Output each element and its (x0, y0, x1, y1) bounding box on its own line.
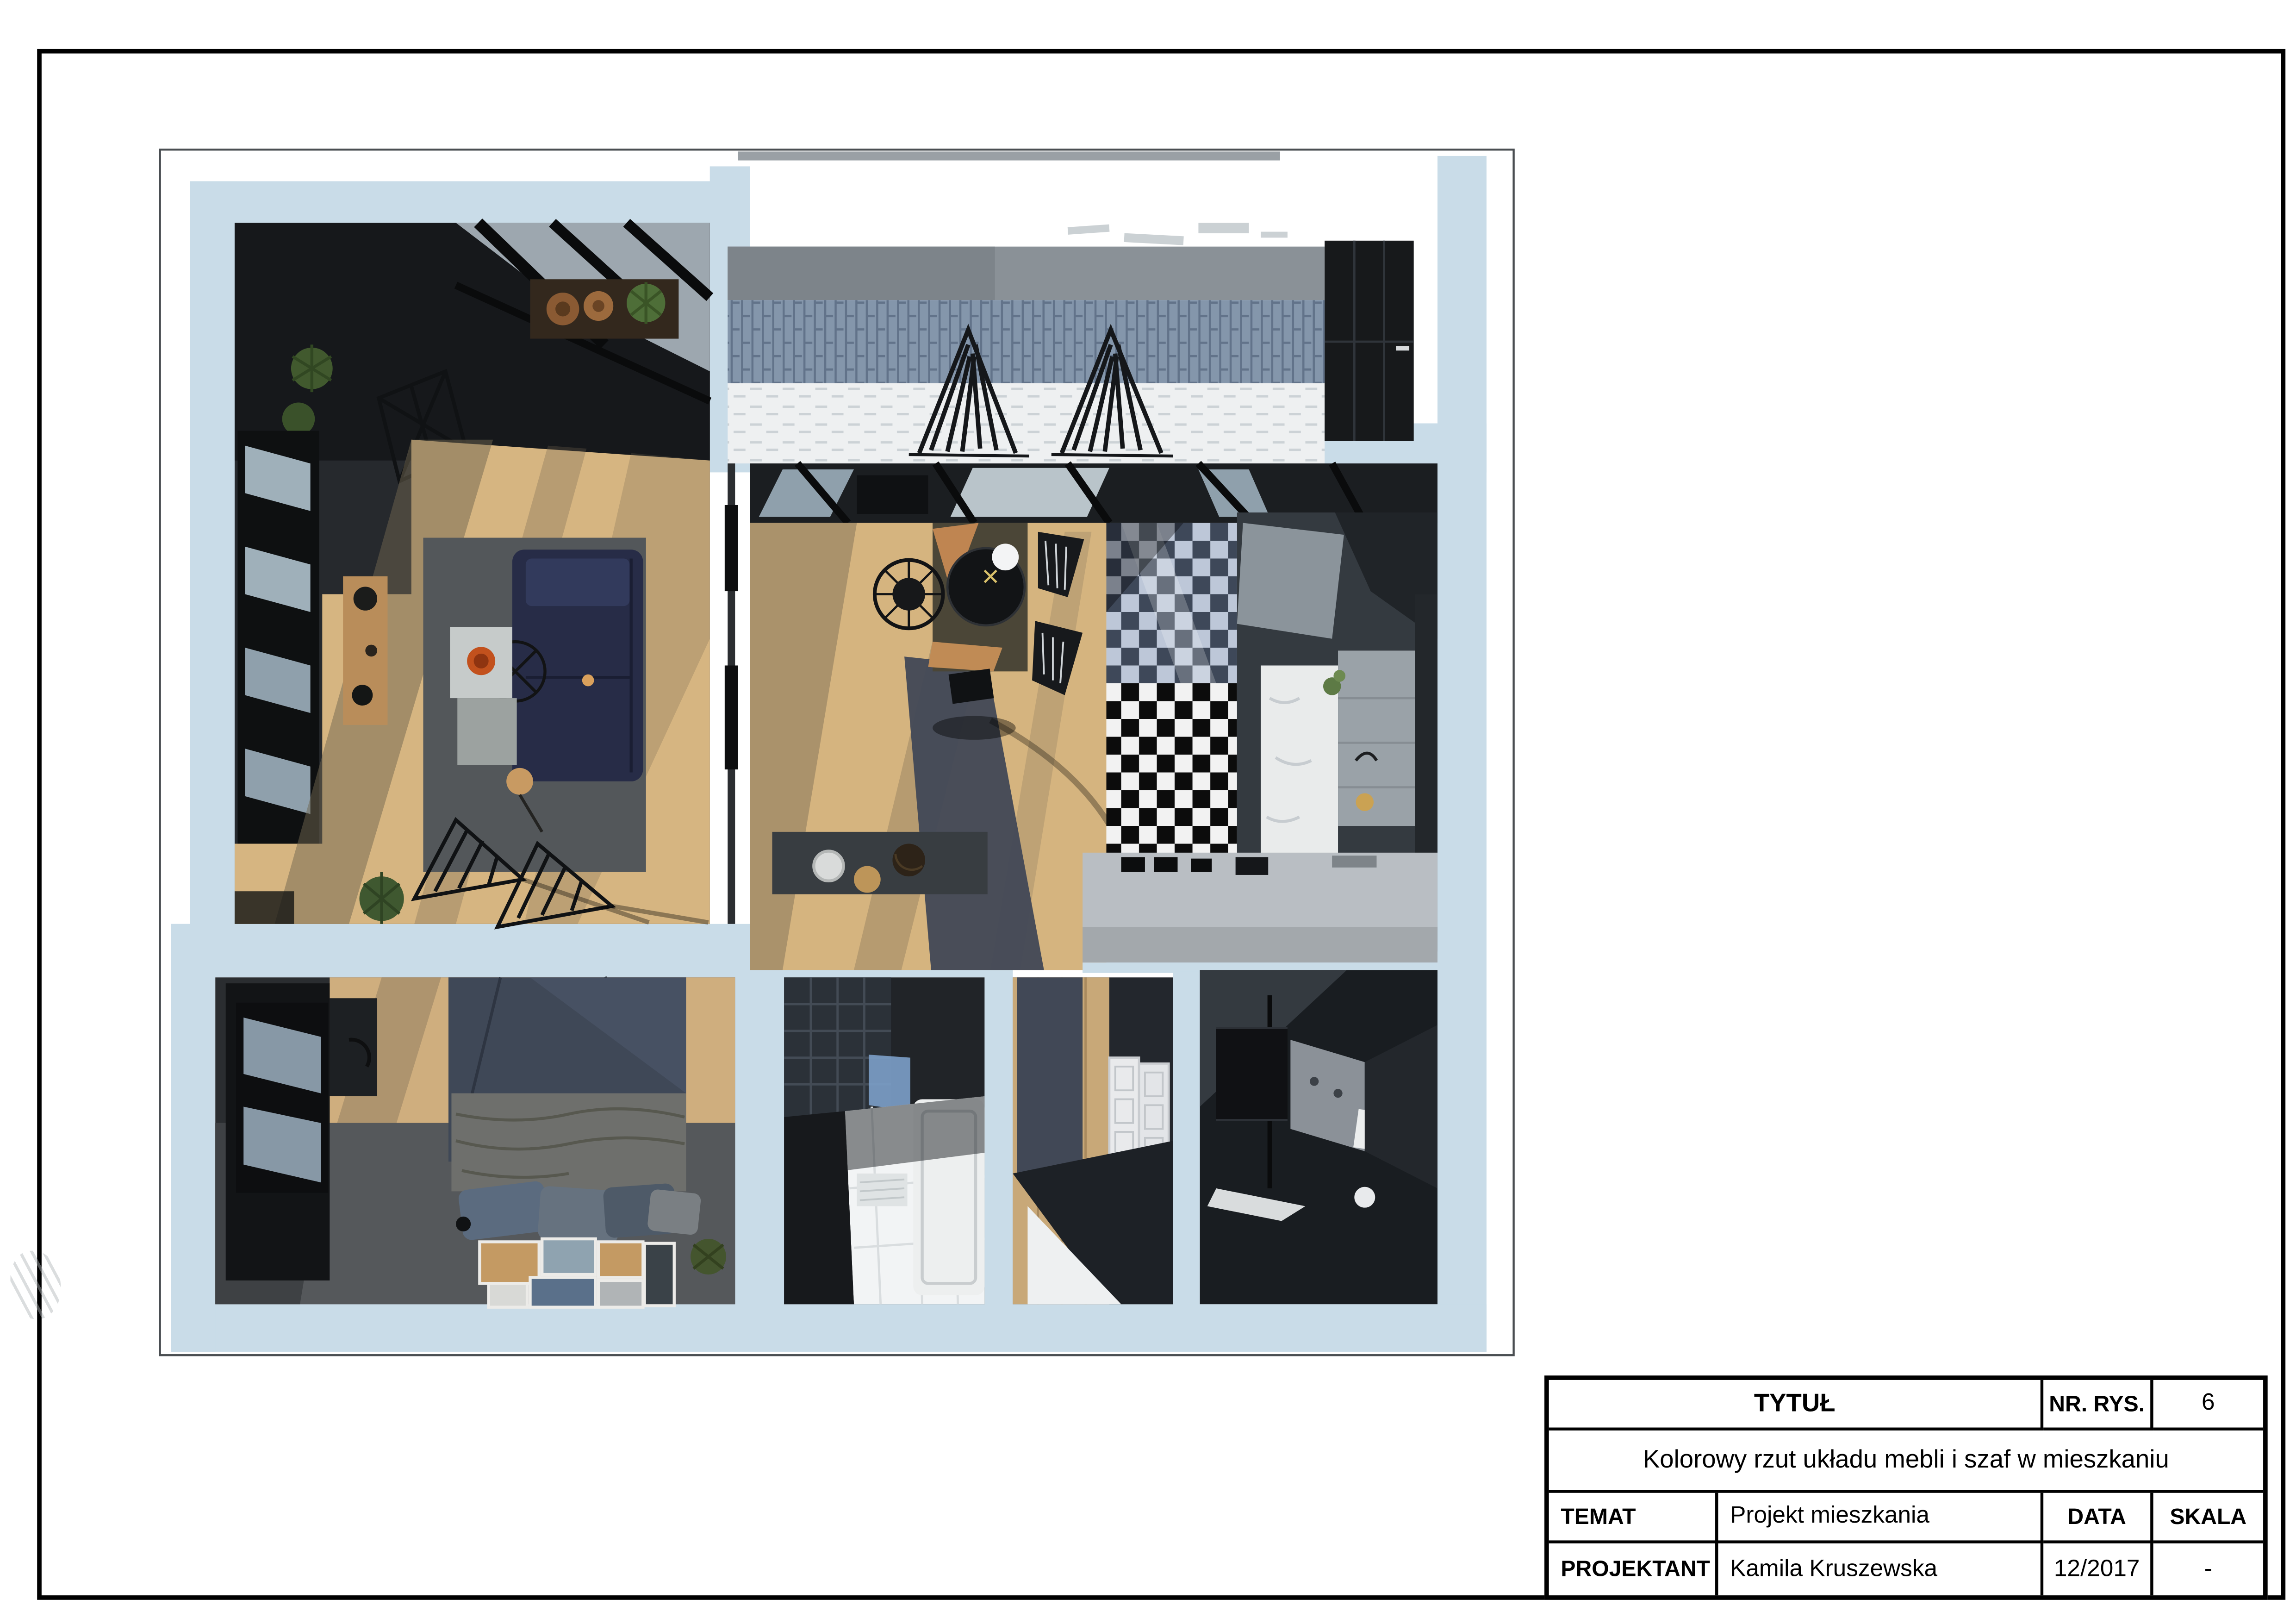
coffee-tables (450, 627, 516, 765)
kitchen-cabinets (1338, 650, 1415, 826)
utility-cabinet (1216, 1028, 1288, 1120)
bedroom-plant (691, 1239, 726, 1274)
shelf-baskets-plants (530, 279, 679, 338)
sink (1236, 857, 1269, 875)
sideboard (772, 832, 988, 894)
balcony-white-tiles (728, 383, 1325, 463)
drawing-sheet: TYTUŁ NR. RYS. 6 Kolorowy rzut układu me… (0, 0, 2296, 1624)
title-label-cell: TYTUŁ (1549, 1380, 2043, 1430)
drawing-number-label-cell: NR. RYS. (2043, 1380, 2153, 1430)
sofa (512, 550, 643, 781)
date-label-cell: DATA (2043, 1493, 2153, 1543)
living-room (235, 223, 738, 927)
kitchen-peninsula (1083, 853, 1437, 972)
bedroom-desk (330, 998, 377, 1096)
dining-area (750, 463, 1437, 971)
scale-label-cell: SKALA (2153, 1493, 2263, 1543)
hallway (1013, 977, 1173, 1304)
balcony-tile-floor (728, 300, 1325, 383)
bedroom (215, 977, 735, 1307)
bathroom (784, 977, 984, 1304)
drawing-title-cell: Kolorowy rzut układu mebli i szaf w mies… (1549, 1430, 2263, 1493)
balcony-storage-cabinet (1325, 241, 1414, 441)
designer-label-cell: PROJEKTANT (1549, 1543, 1718, 1595)
kettle (1356, 793, 1374, 811)
bed (448, 977, 702, 1244)
subject-value-cell: Projekt mieszkania (1718, 1493, 2043, 1543)
floor-plan-rendering (159, 149, 1515, 1356)
subject-label-cell: TEMAT (1549, 1493, 1718, 1543)
hallway-runner (1017, 977, 1083, 1174)
shower-glass (869, 1055, 910, 1111)
bedroom-lamp (456, 1217, 471, 1231)
balcony-top-edge (738, 151, 1280, 160)
designer-value-cell: Kamila Kruszewska (1718, 1543, 2043, 1595)
page-scale-wrapper: TYTUŁ NR. RYS. 6 Kolorowy rzut układu me… (0, 0, 2296, 1624)
wall-sconce (582, 675, 594, 687)
scale-value-cell: - (2153, 1543, 2263, 1595)
bedroom-window (236, 1003, 328, 1193)
wood-console (343, 576, 387, 725)
title-block-table: TYTUŁ NR. RYS. 6 Kolorowy rzut układu me… (1544, 1375, 2268, 1600)
kitchen-island-marble (1261, 665, 1338, 856)
pendant-lamp (992, 543, 1019, 570)
drawing-number-value-cell: 6 (2153, 1380, 2263, 1430)
living-window (237, 431, 319, 847)
utility-room (1200, 970, 1437, 1304)
kitchen-counter (1237, 523, 1344, 638)
picture-frames-collage (479, 1239, 674, 1307)
dining-chair-wire (875, 560, 943, 629)
date-value-cell: 12/2017 (2043, 1543, 2153, 1595)
